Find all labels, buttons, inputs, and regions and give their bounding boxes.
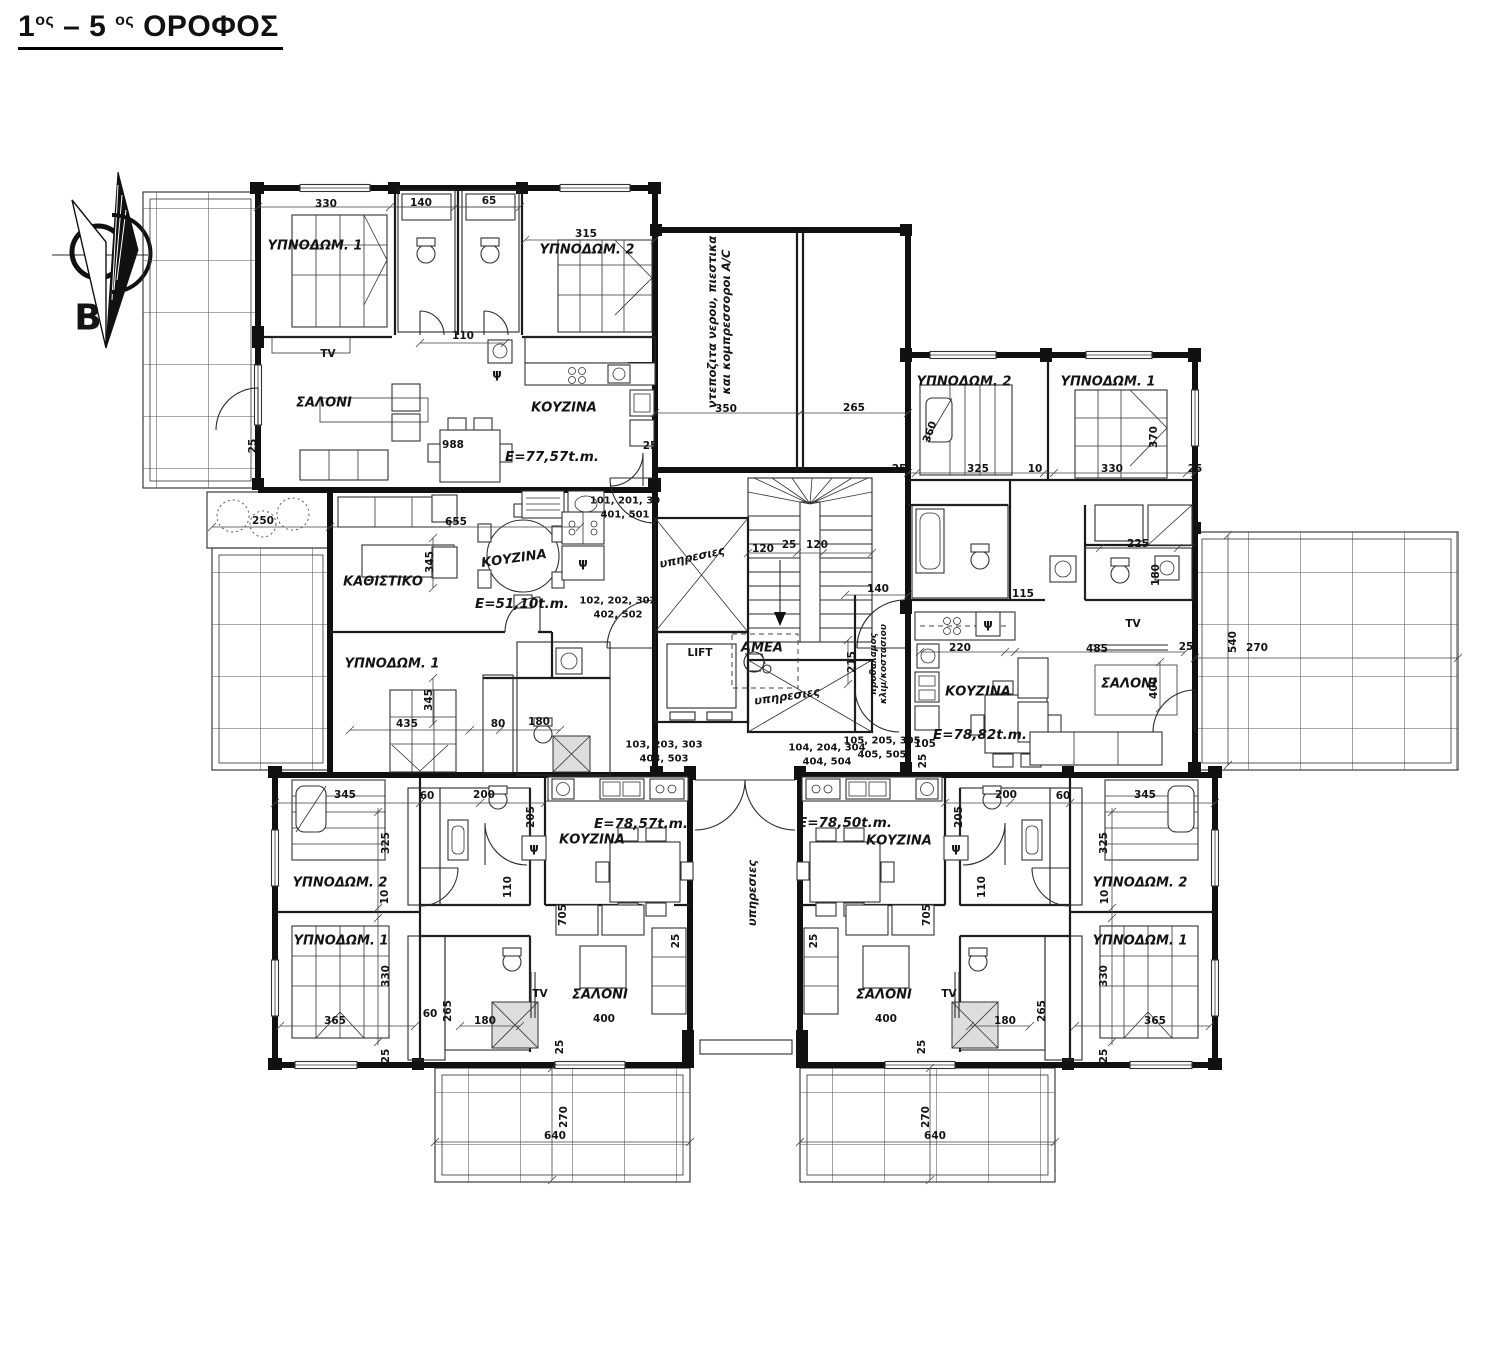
- planter-left: [207, 492, 330, 548]
- apartment-105-fixtures: [912, 385, 1192, 767]
- floor-plan-drawing: [0, 0, 1512, 1359]
- balcony-right: [1195, 532, 1458, 770]
- floor-plan: 1ος – 5 ος ΟΡΟΦΟΣ BΥΠΝΟΔΩΜ. 1ΥΠΝΟΔΩΜ. 2Σ…: [0, 0, 1512, 1359]
- outer-walls: [258, 188, 1215, 1065]
- stair-core: [748, 478, 872, 642]
- balcony-mid-left: [212, 548, 330, 770]
- interior-walls: [258, 188, 1215, 1065]
- services-shaft-upper: [655, 518, 748, 632]
- apartment-103-fixtures: [292, 777, 693, 1060]
- north-arrow-icon: [52, 172, 151, 348]
- balcony-bottom-right: [800, 1068, 1055, 1182]
- page-title: 1ος – 5 ος ΟΡΟΦΟΣ: [18, 10, 283, 50]
- lift-shaft: [655, 632, 748, 722]
- apartment-104-fixtures: [797, 777, 1198, 1060]
- balcony-top-left: [143, 192, 258, 488]
- services-shaft-lower: [748, 642, 872, 732]
- entrance-corridor: [695, 780, 795, 1054]
- balcony-bottom-left: [435, 1068, 690, 1182]
